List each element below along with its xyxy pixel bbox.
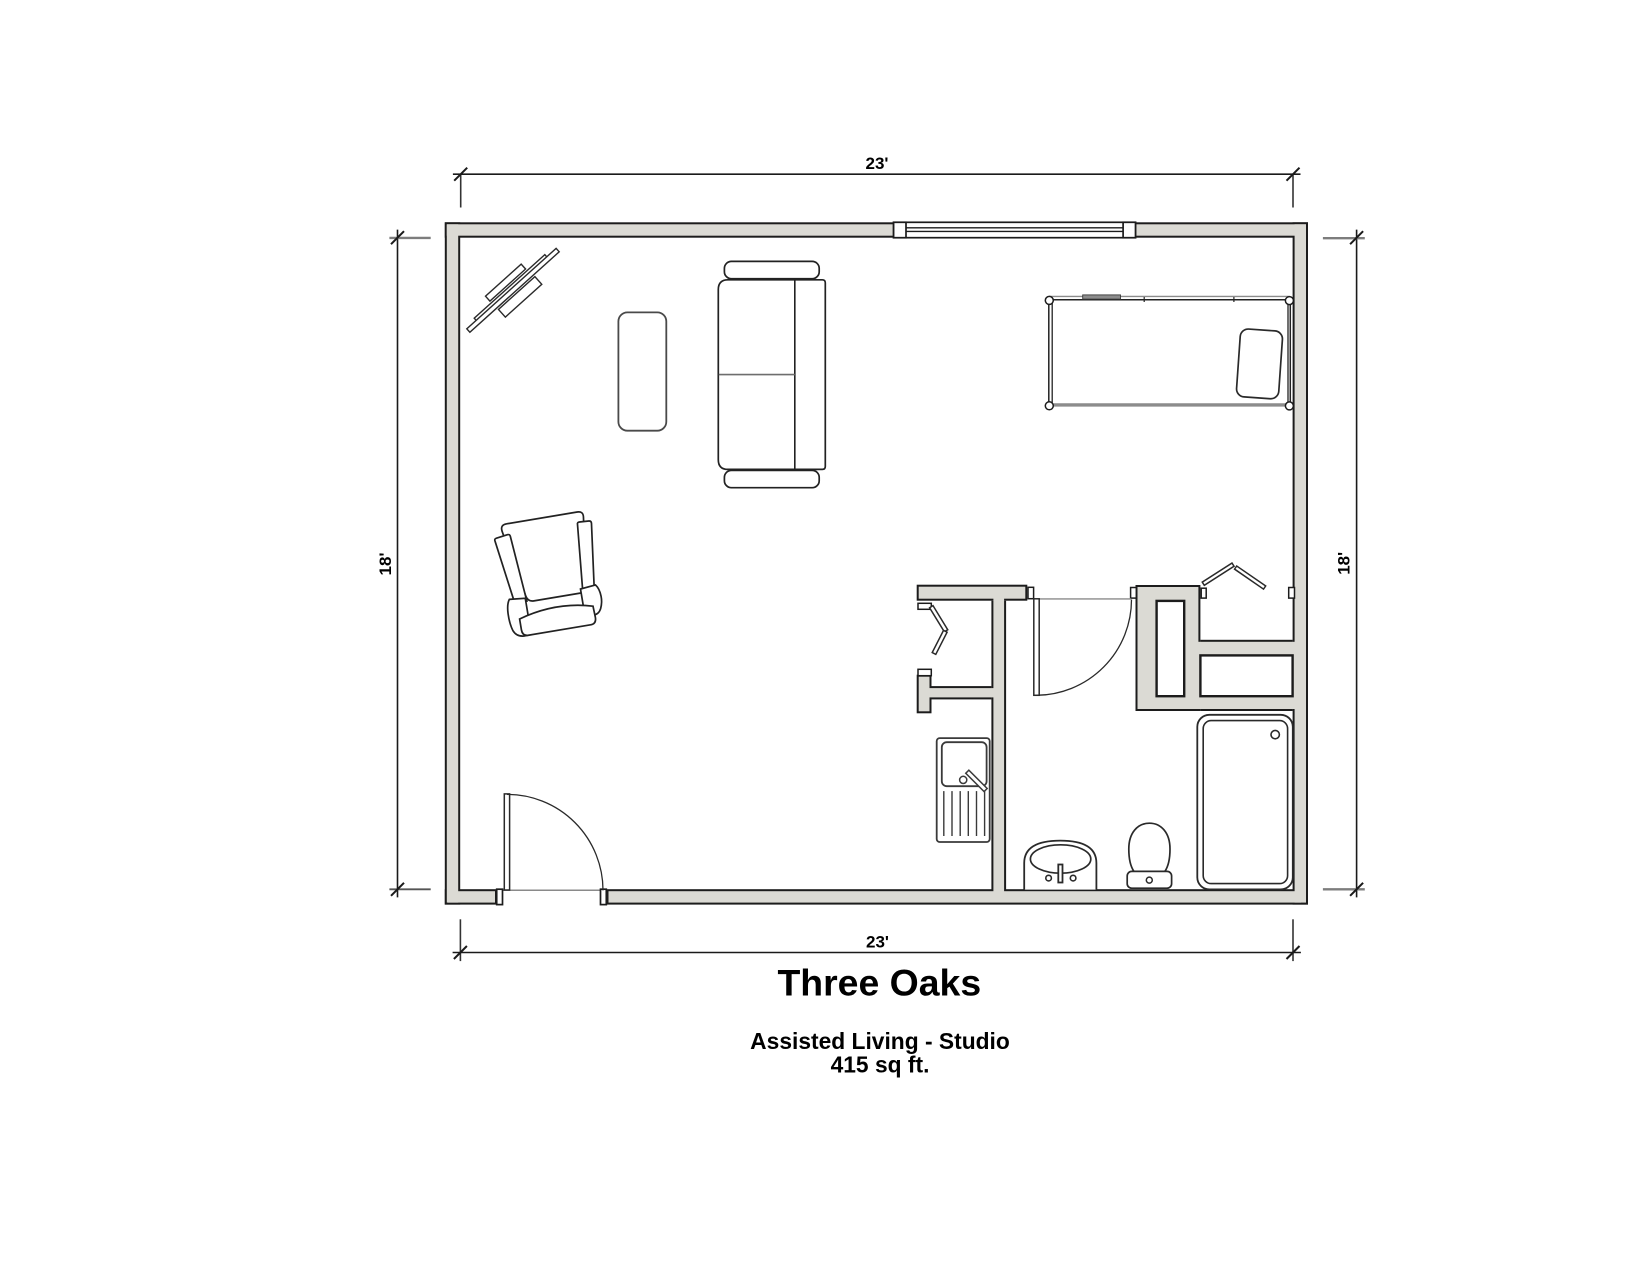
svg-text:23': 23' bbox=[866, 154, 889, 173]
svg-text:18': 18' bbox=[1335, 552, 1354, 575]
svg-text:Assisted Living - Studio: Assisted Living - Studio bbox=[750, 1028, 1010, 1054]
svg-text:23': 23' bbox=[866, 933, 889, 952]
svg-text:18': 18' bbox=[376, 553, 395, 576]
svg-text:Three Oaks: Three Oaks bbox=[777, 961, 981, 1003]
svg-text:415 sq ft.: 415 sq ft. bbox=[831, 1052, 930, 1078]
